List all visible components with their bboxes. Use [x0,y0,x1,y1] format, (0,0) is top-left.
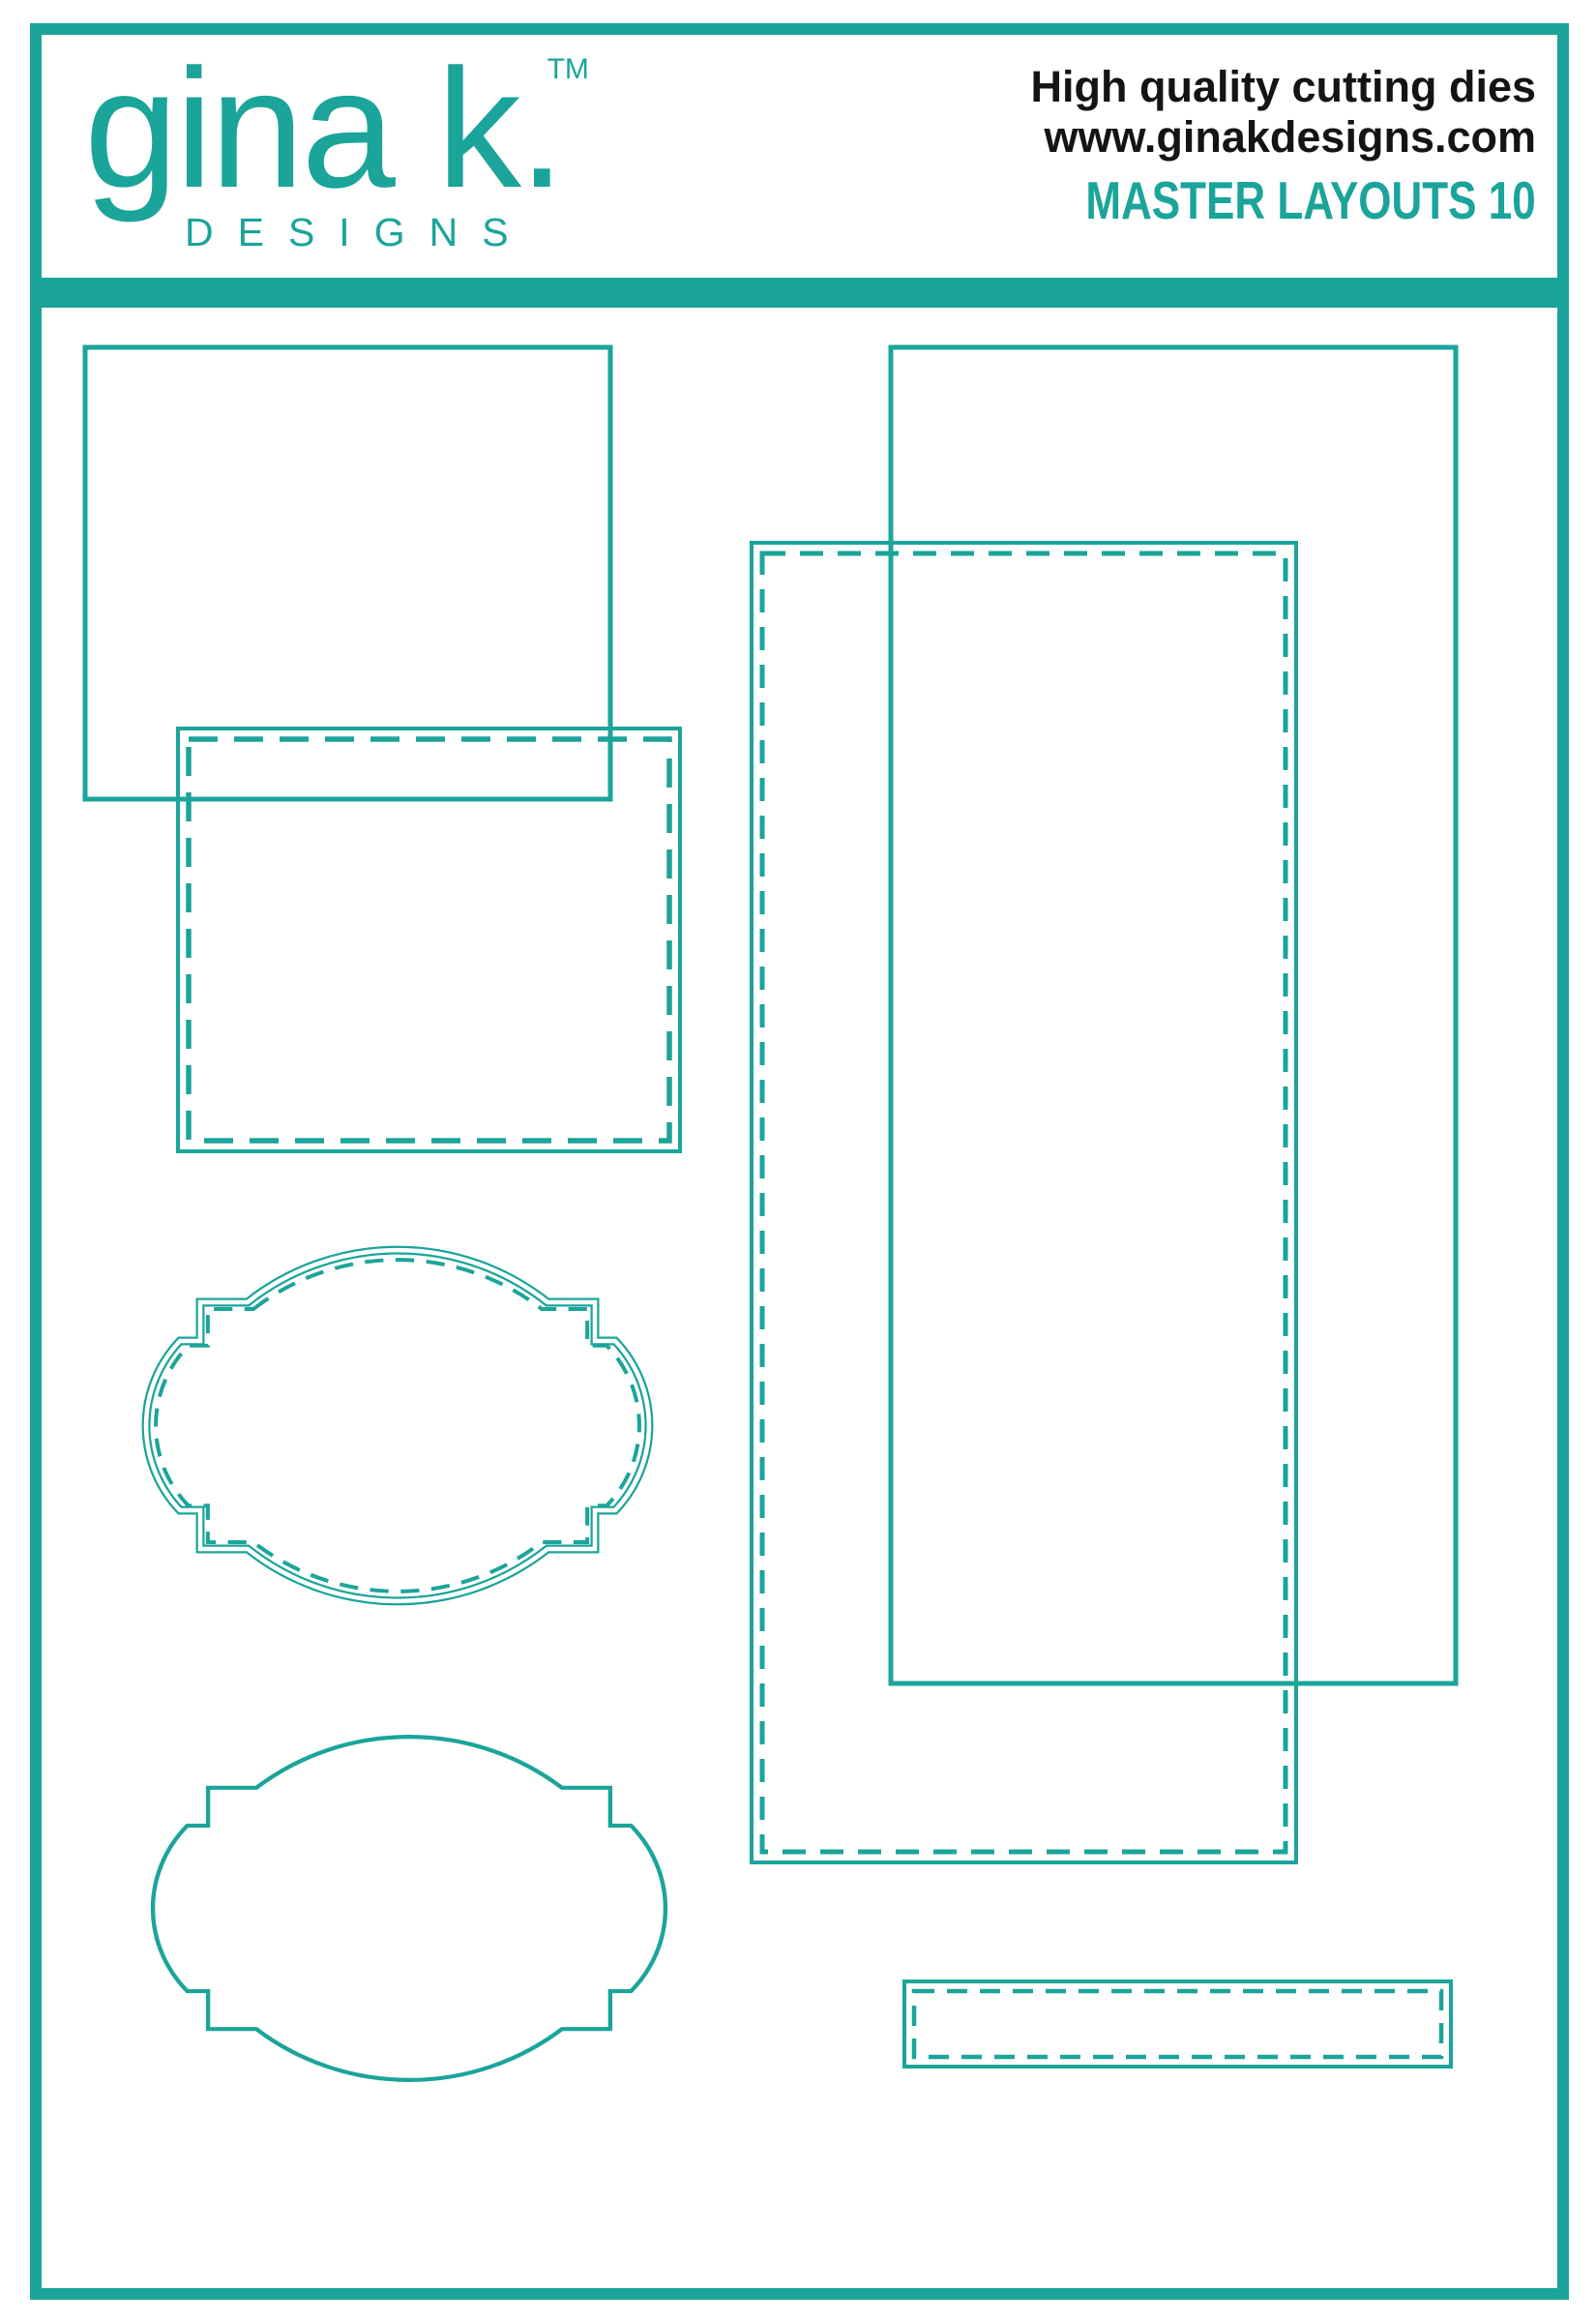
large-rectangle-die [85,347,610,799]
stitch-line [762,553,1286,1852]
stitched-rectangle-die [178,729,680,1151]
die-product-sheet: gina k.TM DESIGNS High quality cutting d… [0,0,1596,2322]
stitch-line [156,1260,639,1592]
stitched-border-strip-die [904,1981,1451,2067]
stitched-label-frame-die [146,1250,649,1601]
slimline-rectangle-die [891,347,1456,1683]
stitched-slimline-rectangle-die [752,543,1296,1862]
label-frame-die [153,1737,665,2080]
die-shapes-canvas [0,0,1596,2322]
stitch-line [914,1991,1441,2057]
